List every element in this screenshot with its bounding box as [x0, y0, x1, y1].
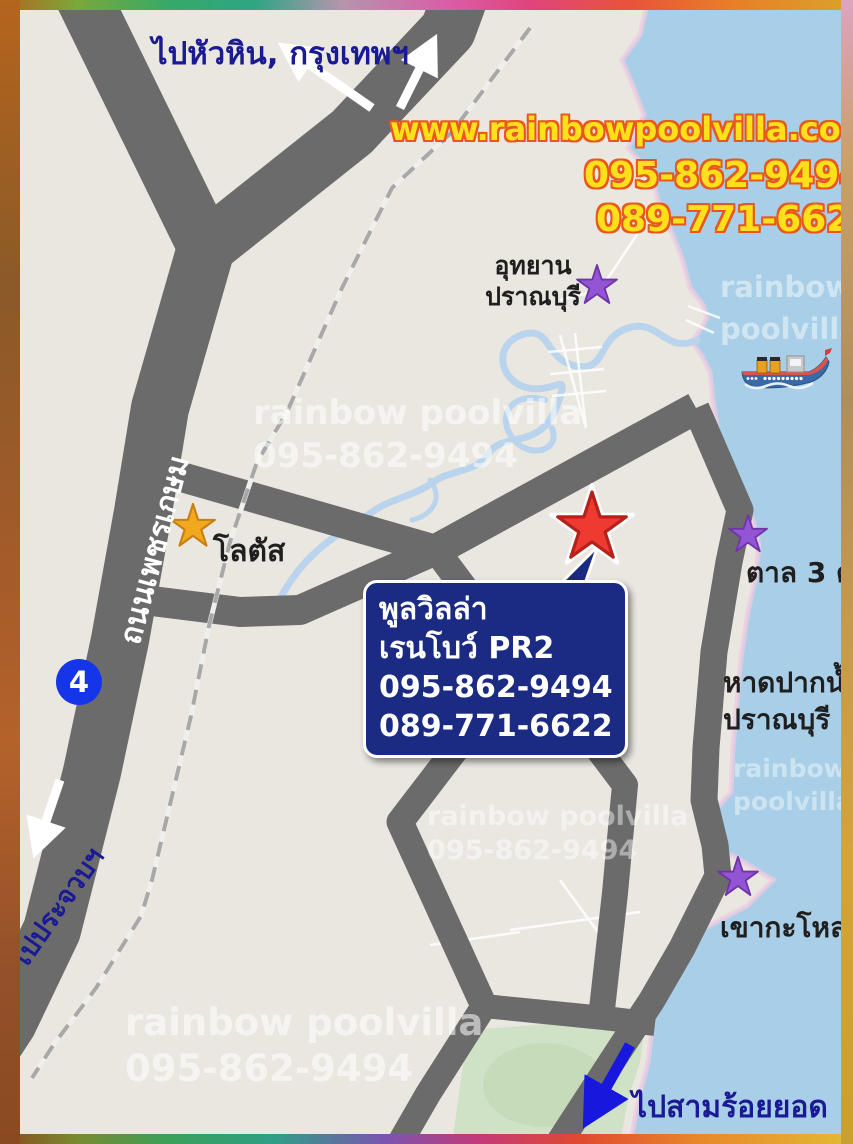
villa-name-line2: เรนโบว์ PR2: [379, 629, 619, 668]
phone-number-2: 089-771-6622: [596, 199, 853, 240]
label-tan-3-ton: ตาล 3 ต้น: [746, 551, 853, 595]
watermark-bottom-left: rainbow poolvilla 095-862-9494: [125, 1000, 483, 1093]
label-pak-nam-pran: หาดปากน้ำ ปราณบุรี: [723, 664, 853, 738]
watermark-center-top: rainbow poolvilla 095-862-9494: [253, 392, 582, 477]
phone-number-1: 095-862-9494: [584, 155, 853, 196]
rainbow-border-right: [841, 0, 853, 1144]
website-text: www.rainbowpoolvilla.com: [390, 110, 853, 148]
label-lotus: โลตัส: [213, 528, 285, 575]
label-to-huahin-bangkok: ไปหัวหิน, กรุงเทพฯ: [152, 28, 409, 78]
villa-phone-1: 095-862-9494: [379, 668, 619, 707]
villa-phone-2: 089-771-6622: [379, 707, 619, 746]
rainbow-border-bottom: [0, 1134, 853, 1144]
watermark-center-bottom: rainbow poolvilla 095-862-9494: [427, 800, 689, 868]
watermark-sea-right: rainbow poolvilla: [733, 752, 853, 818]
rainbow-border-top: [0, 0, 853, 10]
label-pranburi-park-line2: ปราณบุรี: [483, 281, 583, 312]
watermark-sea-top: rainbow poolvilla: [720, 266, 853, 350]
label-to-sam-roi-yot: ไปสามร้อยยอด: [632, 1084, 828, 1131]
map-screenshot: ไปหัวหิน, กรุงเทพฯ www.rainbowpoolvilla.…: [0, 0, 853, 1144]
rainbow-border-left: [0, 0, 20, 1144]
label-pranburi-park-line1: อุทยาน: [483, 250, 583, 281]
label-khao-kalok: เขากะโหลก: [720, 906, 853, 950]
label-pranburi-park: อุทยาน ปราณบุรี: [483, 250, 583, 312]
route-4-badge: 4: [56, 659, 102, 705]
villa-callout-box: พูลวิลล่า เรนโบว์ PR2 095-862-9494 089-7…: [363, 580, 628, 758]
villa-name-line1: พูลวิลล่า: [379, 590, 619, 629]
